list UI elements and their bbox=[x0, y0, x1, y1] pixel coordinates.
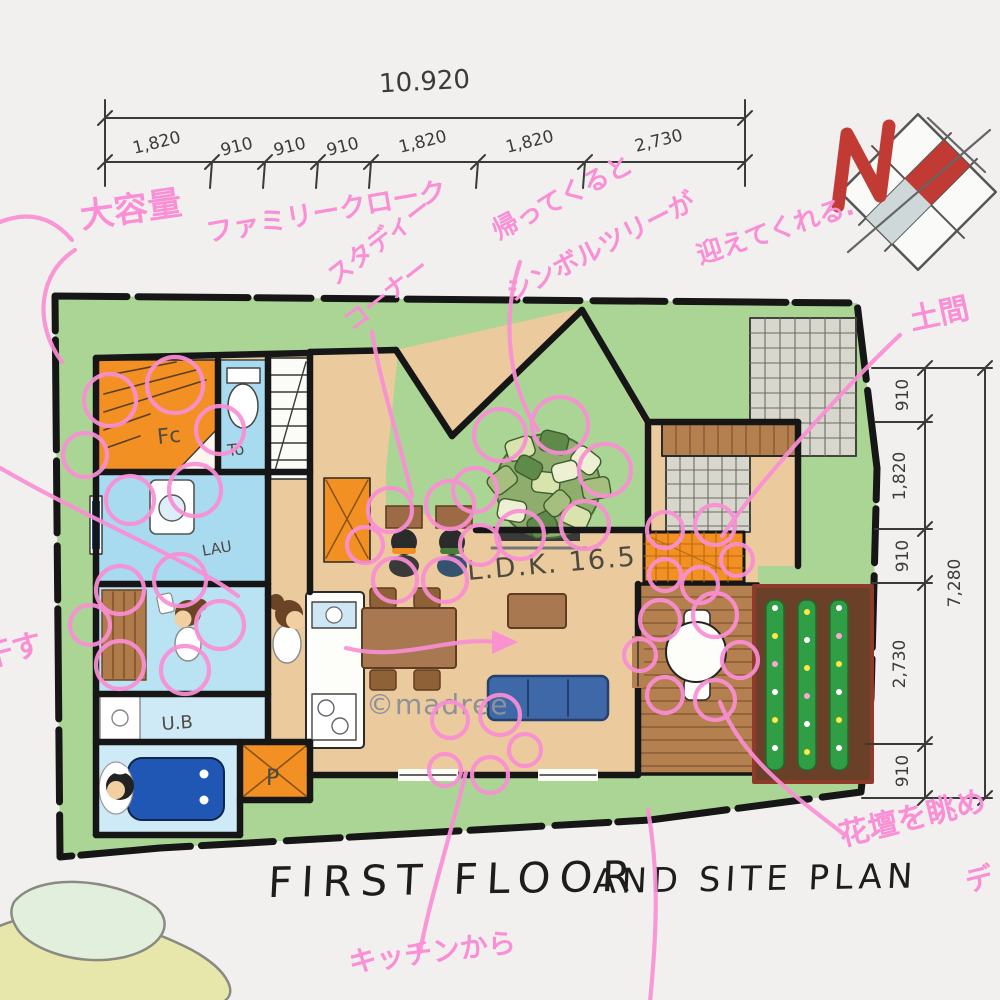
bathtub-icon bbox=[128, 758, 224, 820]
dim-top-total: 10.920 bbox=[378, 65, 470, 100]
dining-table bbox=[362, 608, 456, 668]
entrance-wood-strip bbox=[662, 424, 798, 456]
kitchen-island bbox=[306, 592, 364, 748]
dim-label: 2,730 bbox=[890, 640, 910, 689]
dim-label: 910 bbox=[893, 755, 913, 787]
dim-label: 1,820 bbox=[131, 128, 183, 159]
dim-right-total: 7,280 bbox=[945, 559, 965, 608]
leader-bottom bbox=[648, 810, 656, 1000]
label-unit-bath: U.B bbox=[161, 712, 194, 735]
page-title: FIRST FLOOR AND SITE PLAN bbox=[267, 852, 919, 907]
annotation-kitchen-from: キッチンから bbox=[347, 926, 518, 979]
dim-label: 910 bbox=[219, 134, 255, 161]
label-pantry: P bbox=[266, 766, 279, 791]
title-site-plan: AND SITE PLAN bbox=[592, 856, 918, 902]
leader-top-left bbox=[0, 216, 72, 240]
flower-bed bbox=[754, 586, 872, 782]
title-first-floor: FIRST FLOOR bbox=[267, 852, 641, 907]
dining-chair bbox=[414, 670, 440, 690]
dim-label: 910 bbox=[272, 134, 308, 161]
bathtub-room bbox=[98, 742, 240, 835]
annotation-deck-partial: デ bbox=[962, 860, 998, 899]
toilet-tank-icon bbox=[227, 368, 260, 383]
annotation-welcome-3: 迎えてくれる. bbox=[693, 191, 858, 271]
sketch-page: 10.920 1,820 910 910 910 1,820 1,820 2,7… bbox=[0, 0, 1000, 1000]
annotation-left-partial: 干す bbox=[0, 626, 46, 675]
dim-label: 910 bbox=[893, 379, 913, 411]
annotation-large-capacity: 大容量 bbox=[78, 183, 185, 237]
dim-label: 1,820 bbox=[397, 127, 449, 158]
dim-label: 910 bbox=[893, 540, 913, 572]
dimension-right bbox=[862, 361, 992, 805]
stairs bbox=[268, 358, 312, 479]
person-bathing bbox=[99, 762, 134, 814]
room-washroom bbox=[98, 584, 268, 694]
dim-top-segments: 1,820 910 910 910 1,820 1,820 2,730 bbox=[131, 126, 685, 161]
annotation-doma: 土間 bbox=[906, 291, 972, 338]
coffee-table bbox=[508, 594, 566, 628]
label-family-closet: Fc bbox=[156, 423, 182, 449]
dining-chair bbox=[370, 670, 396, 690]
stove-icon bbox=[312, 694, 356, 740]
north-indicator bbox=[826, 100, 1000, 284]
dim-label: 1,820 bbox=[504, 127, 556, 158]
watercolor-landscape bbox=[0, 882, 230, 1000]
dim-label: 910 bbox=[325, 134, 361, 161]
floor-plan-drawing: 10.920 1,820 910 910 910 1,820 1,820 2,7… bbox=[0, 0, 1000, 1000]
dim-label: 2,730 bbox=[633, 126, 685, 157]
dim-label: 1,820 bbox=[890, 452, 910, 501]
